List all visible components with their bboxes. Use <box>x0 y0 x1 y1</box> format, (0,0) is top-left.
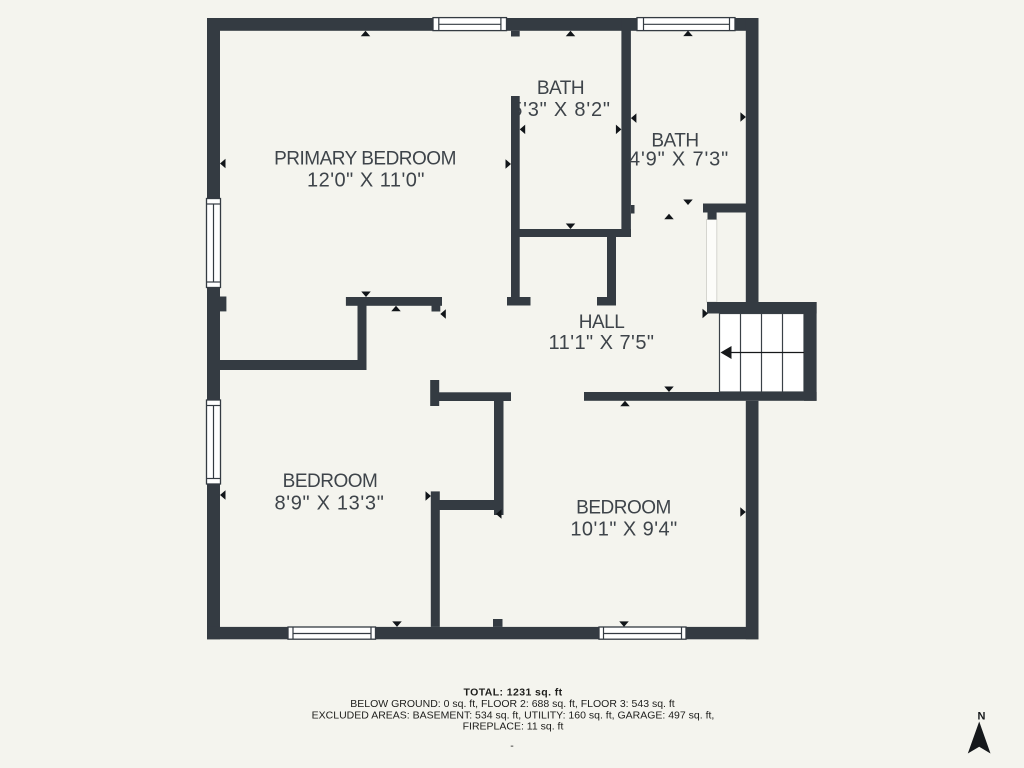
svg-text:5'3" X 8'2": 5'3" X 8'2" <box>511 99 611 121</box>
svg-text:12'0" X 11'0": 12'0" X 11'0" <box>307 170 425 192</box>
svg-text:FIREPLACE: 11 sq. ft: FIREPLACE: 11 sq. ft <box>463 721 564 733</box>
svg-text:BATH: BATH <box>537 78 584 99</box>
svg-text:TOTAL: 1231 sq. ft: TOTAL: 1231 sq. ft <box>464 687 563 699</box>
svg-text:BEDROOM: BEDROOM <box>283 471 378 492</box>
svg-text:11'1" X 7'5": 11'1" X 7'5" <box>549 332 655 354</box>
svg-text:-: - <box>510 740 514 752</box>
svg-text:EXCLUDED AREAS: BASEMENT: 534: EXCLUDED AREAS: BASEMENT: 534 sq. ft, UT… <box>312 709 715 721</box>
svg-text:N: N <box>978 711 986 723</box>
svg-text:8'9" X 13'3": 8'9" X 13'3" <box>274 493 384 515</box>
svg-text:BEDROOM: BEDROOM <box>576 498 671 519</box>
svg-text:PRIMARY BEDROOM: PRIMARY BEDROOM <box>274 149 456 170</box>
svg-text:4'9" X 7'3": 4'9" X 7'3" <box>629 149 729 171</box>
svg-text:HALL: HALL <box>579 312 625 333</box>
svg-text:10'1" X 9'4": 10'1" X 9'4" <box>570 519 677 541</box>
svg-text:BELOW GROUND: 0 sq. ft, FLOOR: BELOW GROUND: 0 sq. ft, FLOOR 2: 688 sq.… <box>350 698 675 710</box>
